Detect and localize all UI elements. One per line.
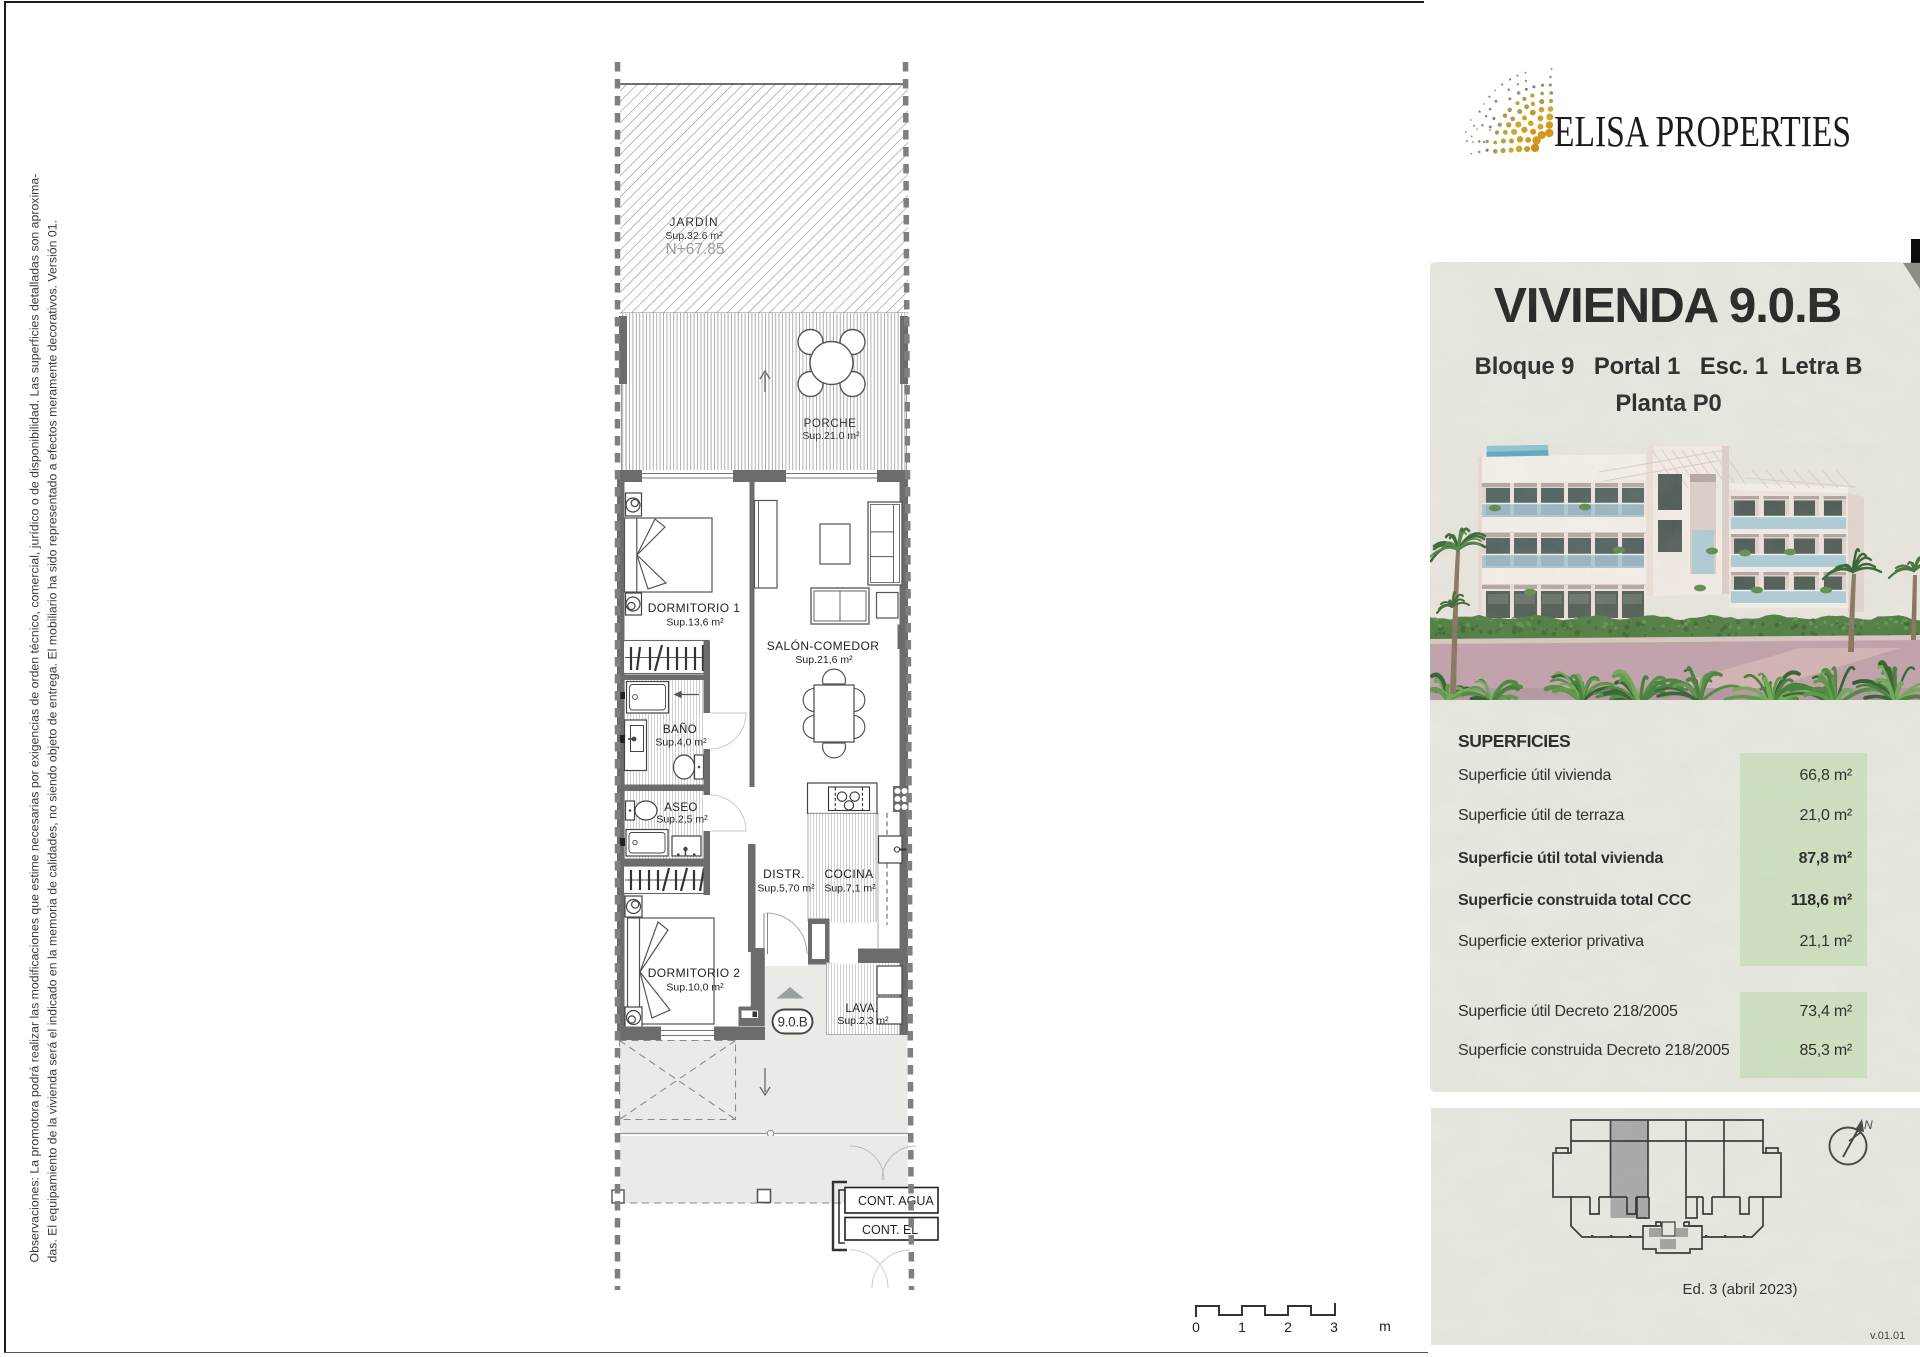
svg-text:Sup.2,5 m²: Sup.2,5 m² xyxy=(656,814,708,826)
svg-text:Sup.21.0 m²: Sup.21.0 m² xyxy=(802,430,860,442)
svg-text:Sup.5,70 m²: Sup.5,70 m² xyxy=(757,883,815,895)
svg-text:JARDÍN: JARDÍN xyxy=(669,214,718,229)
svg-text:Sup.21,6 m²: Sup.21,6 m² xyxy=(795,654,853,666)
svg-text:DORMITORIO 1: DORMITORIO 1 xyxy=(648,601,741,615)
svg-text:DISTR.: DISTR. xyxy=(763,867,805,881)
svg-text:DORMITORIO 2: DORMITORIO 2 xyxy=(648,966,741,980)
svg-text:BAÑO: BAÑO xyxy=(663,723,697,736)
svg-text:9.0.B: 9.0.B xyxy=(777,1015,807,1030)
svg-text:3: 3 xyxy=(1330,1319,1338,1335)
svg-text:Sup.10,0 m²: Sup.10,0 m² xyxy=(666,982,724,994)
svg-text:Sup.2,3 m²: Sup.2,3 m² xyxy=(837,1015,889,1027)
svg-text:m: m xyxy=(1379,1318,1391,1334)
svg-text:ASEO: ASEO xyxy=(664,802,698,814)
svg-text:Sup.13,6 m²: Sup.13,6 m² xyxy=(666,617,724,629)
svg-text:0: 0 xyxy=(1192,1319,1200,1335)
svg-text:SALÓN-COMEDOR: SALÓN-COMEDOR xyxy=(767,638,880,653)
svg-text:PORCHE: PORCHE xyxy=(804,418,857,430)
svg-text:ELISA PROPERTIES: ELISA PROPERTIES xyxy=(1554,107,1851,156)
svg-text:LAVA.: LAVA. xyxy=(846,1003,879,1015)
svg-text:Sup.4,0 m²: Sup.4,0 m² xyxy=(655,737,707,749)
svg-text:2: 2 xyxy=(1284,1319,1292,1335)
svg-text:N+67.85: N+67.85 xyxy=(665,241,724,258)
svg-text:1: 1 xyxy=(1238,1319,1246,1335)
svg-text:COCINA: COCINA xyxy=(824,867,873,881)
svg-text:Sup.7,1 m²: Sup.7,1 m² xyxy=(824,883,876,895)
svg-text:CONT. AGUA: CONT. AGUA xyxy=(858,1194,934,1208)
